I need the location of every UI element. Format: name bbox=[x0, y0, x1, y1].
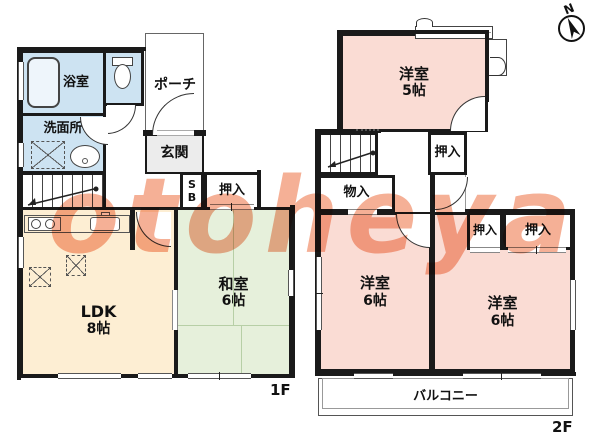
bedroom5-name-label: 洋室 bbox=[399, 66, 429, 83]
closet-1f-label: 押入 bbox=[219, 184, 245, 199]
window bbox=[288, 270, 294, 296]
shoe-box: SB bbox=[180, 172, 204, 210]
kitchen-sink-icon bbox=[90, 217, 120, 231]
sliding-door-tick bbox=[231, 203, 232, 211]
ldk-size-label: 8帖 bbox=[87, 321, 111, 337]
sliding-door-tick bbox=[536, 246, 537, 254]
bedroom6r-name-label: 洋室 bbox=[487, 255, 517, 312]
wall bbox=[465, 209, 575, 213]
ldk-marker-a-icon bbox=[66, 255, 86, 276]
bathtub-icon bbox=[27, 57, 60, 108]
window bbox=[18, 62, 24, 100]
shoe-box-label: SB bbox=[186, 178, 198, 204]
sliding-door bbox=[172, 290, 178, 330]
window bbox=[18, 237, 24, 268]
wall bbox=[337, 30, 341, 133]
bedroom6l-name-label: 洋室 bbox=[360, 275, 390, 292]
closet-2f-right: 押入 bbox=[503, 212, 573, 250]
closet-2f-right-label: 押入 bbox=[525, 224, 551, 239]
stair-top-dotted bbox=[356, 129, 379, 135]
closet-2f-left: 押入 bbox=[467, 212, 503, 250]
door-arc-balcony-right bbox=[490, 57, 506, 76]
window bbox=[354, 373, 393, 379]
sliding-door bbox=[508, 247, 566, 253]
washroom-sink-drain-icon bbox=[82, 158, 88, 164]
window-tick bbox=[315, 293, 323, 294]
washing-machine-icon bbox=[31, 141, 65, 169]
wall bbox=[17, 47, 146, 51]
porch-label: ポーチ bbox=[150, 77, 200, 93]
ldk-marker-b-icon bbox=[29, 267, 51, 287]
kitchen-faucet-icon bbox=[101, 212, 110, 216]
stove-burner-left-icon bbox=[31, 219, 41, 229]
tatami-line bbox=[241, 326, 242, 375]
washroom-sink-icon bbox=[70, 145, 100, 168]
stairs-1f-arrow-icon bbox=[20, 172, 106, 212]
tatami-line bbox=[178, 325, 289, 326]
entrance-jamb-right bbox=[194, 130, 206, 136]
stove-burner-right-icon bbox=[45, 219, 55, 229]
wall bbox=[337, 30, 488, 34]
wall bbox=[485, 30, 489, 102]
bedroom6l-size-label: 6帖 bbox=[363, 293, 387, 309]
window bbox=[18, 143, 24, 167]
window bbox=[570, 280, 576, 330]
genkan-label: 玄関 bbox=[161, 145, 189, 161]
window bbox=[138, 373, 172, 379]
storage-2f: 物入 bbox=[318, 175, 395, 212]
kitchen-wall-stub bbox=[130, 207, 135, 250]
storage-2f-label: 物入 bbox=[343, 186, 369, 201]
balcony-inner-line bbox=[322, 378, 569, 409]
bedroom5-size-label: 5帖 bbox=[402, 83, 426, 99]
sliding-door bbox=[210, 204, 254, 210]
bedroom6r-size-label: 6帖 bbox=[491, 313, 515, 329]
toilet-bowl-icon bbox=[114, 64, 131, 89]
window bbox=[463, 373, 541, 379]
window bbox=[58, 373, 121, 379]
door-arc-toilet bbox=[107, 105, 136, 134]
compass-icon: N bbox=[550, 2, 596, 50]
sliding-door bbox=[470, 247, 500, 253]
window-tick bbox=[501, 372, 502, 380]
stairs-2f-arrow-icon bbox=[318, 132, 378, 175]
tatami-line bbox=[233, 210, 234, 325]
window-tick bbox=[219, 372, 220, 380]
floor-plan-image: ポーチ 浴室 洗面所 玄関 SB 押入 LDK 8帖 bbox=[0, 0, 600, 440]
door-arc-balcony-top bbox=[416, 18, 433, 27]
entrance-opening bbox=[157, 130, 194, 136]
floor1-label: 1F bbox=[270, 381, 291, 399]
room-genkan: 玄関 bbox=[145, 133, 204, 174]
sliding-door bbox=[348, 209, 377, 215]
closet-2f-upper: 押入 bbox=[428, 132, 467, 175]
closet-2f-upper-label: 押入 bbox=[434, 146, 460, 161]
wall bbox=[257, 170, 261, 210]
floor2-label: 2F bbox=[552, 418, 573, 436]
closet-2f-left-label: 押入 bbox=[473, 224, 497, 238]
door-arc-bedroom6-right bbox=[435, 177, 468, 210]
